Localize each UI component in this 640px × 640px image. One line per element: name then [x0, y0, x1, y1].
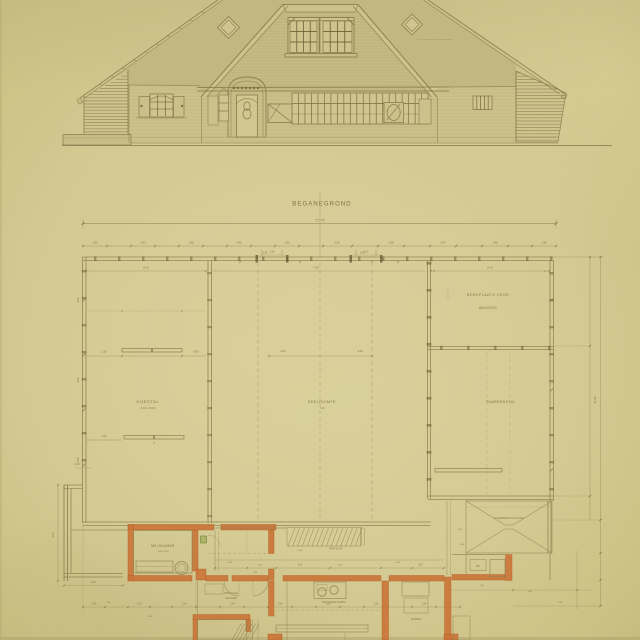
svg-text:TRAP 16 TR.: TRAP 16 TR. — [329, 548, 343, 551]
svg-text:WAGENS: WAGENS — [479, 306, 498, 310]
svg-text:WC: WC — [476, 565, 480, 568]
svg-text:2.55: 2.55 — [334, 241, 340, 245]
svg-text:OVERDEKTE INGANG: OVERDEKTE INGANG — [494, 516, 524, 520]
svg-text:5.00: 5.00 — [51, 532, 55, 538]
svg-text:1.90: 1.90 — [418, 565, 423, 567]
svg-text:PROVISIE: PROVISIE — [224, 591, 238, 595]
svg-text:1.50: 1.50 — [92, 604, 97, 606]
svg-text:1.90: 1.90 — [263, 253, 268, 255]
svg-text:1.90: 1.90 — [360, 253, 365, 255]
svg-text:1.98: 1.98 — [188, 241, 194, 245]
svg-text:KOESTAL: KOESTAL — [136, 399, 159, 404]
svg-text:1.50: 1.50 — [374, 604, 379, 606]
svg-text:3.10: 3.10 — [90, 580, 96, 584]
svg-text:0.90: 0.90 — [193, 350, 199, 354]
svg-text:2.45: 2.45 — [236, 241, 242, 245]
svg-text:7.00: 7.00 — [313, 266, 319, 270]
svg-text:2.43: 2.43 — [140, 241, 146, 245]
svg-text:3.50: 3.50 — [77, 457, 80, 462]
svg-text:1.50: 1.50 — [182, 604, 187, 606]
svg-text:8.10: 8.10 — [143, 266, 149, 270]
svg-text:2.08: 2.08 — [388, 241, 394, 245]
svg-text:2.43: 2.43 — [440, 241, 446, 245]
svg-text:DEELRUIMTE: DEELRUIMTE — [308, 400, 336, 404]
svg-text:1.98: 1.98 — [492, 241, 498, 245]
svg-text:2.20: 2.20 — [280, 349, 286, 353]
svg-text:27.70: 27.70 — [315, 219, 325, 223]
svg-text:BEGANEGROND: BEGANEGROND — [292, 202, 351, 208]
svg-text:MELKKAMER: MELKKAMER — [151, 544, 175, 548]
svg-text:1.50: 1.50 — [230, 604, 235, 606]
svg-text:2.50: 2.50 — [270, 251, 275, 254]
svg-text:WOONKEUKEN: WOONKEUKEN — [322, 600, 346, 604]
svg-text:1.20: 1.20 — [102, 436, 107, 438]
svg-text:2.08: 2.08 — [298, 565, 303, 567]
svg-text:KAMER: KAMER — [411, 617, 421, 621]
svg-text:2.20: 2.20 — [357, 349, 363, 353]
svg-text:3.50: 3.50 — [77, 377, 80, 382]
svg-text:1.50: 1.50 — [422, 604, 427, 606]
svg-text:2.50: 2.50 — [364, 251, 369, 254]
svg-text:1.50: 1.50 — [541, 241, 547, 245]
svg-text:8.10: 8.10 — [487, 266, 493, 270]
svg-text:3.60 x 4.20: 3.60 x 4.20 — [158, 551, 170, 553]
svg-text:3.50: 3.50 — [77, 297, 80, 302]
svg-text:7.00: 7.00 — [319, 407, 325, 410]
svg-text:KELDER: KELDER — [225, 596, 237, 600]
svg-text:1.50: 1.50 — [137, 604, 142, 606]
svg-text:BERGPLAATS VOOR: BERGPLAATS VOOR — [467, 293, 509, 297]
svg-text:6.10 x 18.40: 6.10 x 18.40 — [141, 407, 156, 410]
svg-text:PAARDENSTAL: PAARDENSTAL — [486, 400, 516, 404]
svg-text:1.20: 1.20 — [101, 350, 107, 354]
svg-text:18.40: 18.40 — [593, 396, 597, 404]
svg-text:1.50: 1.50 — [284, 241, 290, 245]
svg-text:1.50: 1.50 — [278, 604, 283, 606]
svg-text:1.50: 1.50 — [92, 241, 98, 245]
